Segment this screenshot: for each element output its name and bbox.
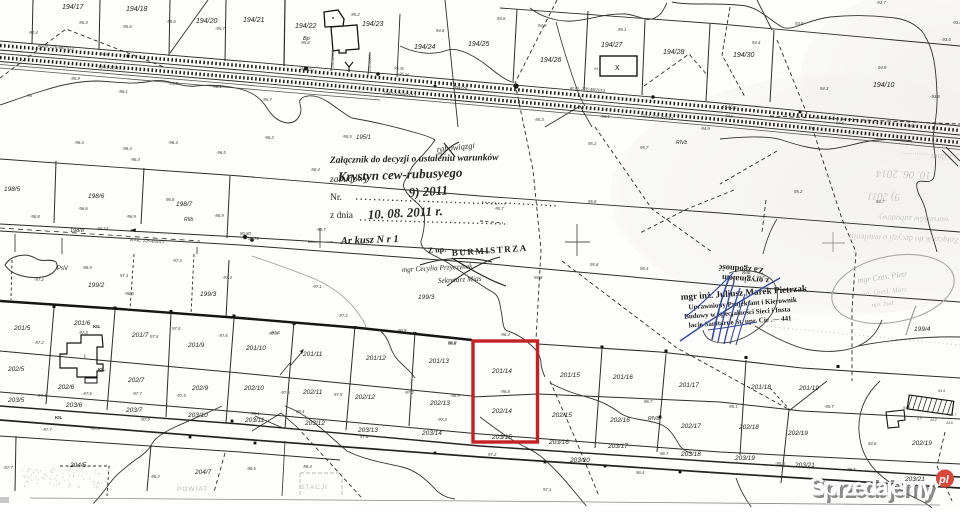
svg-text:203/13: 203/13 — [357, 427, 378, 434]
svg-text:96.8: 96.8 — [166, 197, 175, 202]
svg-text:-93.6: -93.6 — [941, 37, 951, 42]
svg-text:94.6: 94.6 — [836, 120, 845, 126]
svg-text:201/13: 201/13 — [428, 358, 449, 365]
svg-text:202/19: 202/19 — [911, 440, 932, 447]
svg-text:-97.6: -97.6 — [218, 333, 228, 338]
svg-text:202/10: 202/10 — [243, 385, 264, 392]
svg-text:95.7: 95.7 — [640, 145, 649, 150]
svg-text:203/19: 203/19 — [734, 455, 755, 462]
svg-text:202/14: 202/14 — [491, 408, 512, 415]
svg-text:-93.8: -93.8 — [952, 20, 960, 25]
svg-text:194/23: 194/23 — [362, 21, 384, 28]
svg-text:202/5: 202/5 — [7, 366, 25, 373]
svg-text:97.2: 97.2 — [488, 452, 497, 457]
svg-text:-97.3: -97.3 — [437, 417, 447, 422]
svg-text:96.7: 96.7 — [660, 451, 669, 456]
svg-text:95.6: 95.6 — [590, 262, 599, 267]
svg-text:201/10: 201/10 — [245, 345, 266, 352]
svg-text:97.4: 97.4 — [38, 393, 47, 398]
svg-text:94.7: 94.7 — [949, 413, 957, 417]
svg-text:201/9: 201/9 — [187, 342, 205, 349]
svg-text:Nr.: Nr. — [330, 193, 342, 203]
svg-text:95.8: 95.8 — [534, 275, 543, 280]
svg-text:-96.9: -96.9 — [82, 265, 92, 270]
svg-text:9) 2011: 9) 2011 — [408, 182, 448, 200]
svg-text:-95.9: -95.9 — [168, 81, 178, 86]
svg-text:-93.6: -93.6 — [930, 94, 940, 99]
svg-text:-97.5: -97.5 — [280, 390, 290, 395]
svg-text:202/12: 202/12 — [354, 394, 375, 401]
svg-text:203/5: 203/5 — [7, 397, 25, 404]
svg-text:pl: pl — [938, 474, 950, 486]
svg-text:201/6: 201/6 — [73, 320, 91, 327]
svg-text:-97.3: -97.3 — [172, 258, 182, 263]
svg-text:94.5: 94.5 — [903, 406, 911, 410]
svg-text:-95.6: -95.6 — [300, 40, 310, 45]
svg-text:-95.6: -95.6 — [122, 24, 132, 29]
svg-text:-97.6: -97.6 — [82, 391, 92, 396]
svg-text:-97.3: -97.3 — [78, 330, 88, 335]
svg-text:POWIAT: POWIAT — [177, 486, 208, 493]
svg-text:-96.8: -96.8 — [30, 214, 40, 219]
svg-text:95.2: 95.2 — [588, 141, 597, 146]
svg-text:-96.2: -96.2 — [264, 135, 274, 140]
svg-text:194/25: 194/25 — [468, 41, 490, 48]
svg-text:201/12: 201/12 — [365, 355, 386, 362]
svg-text:202/9: 202/9 — [191, 385, 209, 392]
svg-text:194/24: 194/24 — [414, 44, 436, 51]
svg-text:-97.7: -97.7 — [42, 427, 52, 432]
svg-text:190-4/2013: 190-4/2013 — [331, 50, 335, 68]
svg-text:-96.9: -96.9 — [450, 393, 460, 398]
svg-text:-96.9: -96.9 — [126, 214, 136, 219]
svg-text:44.8: 44.8 — [946, 421, 953, 425]
svg-text:203/11: 203/11 — [244, 417, 265, 424]
svg-text:-95.9: -95.9 — [70, 76, 80, 81]
svg-text:199/3: 199/3 — [418, 294, 435, 301]
svg-text:201/17: 201/17 — [678, 382, 699, 389]
svg-text:94.8: 94.8 — [436, 28, 445, 33]
svg-text:Z up.: Z up. — [428, 245, 447, 255]
svg-text:KIL: KIL — [55, 415, 63, 420]
svg-text:203/17: 203/17 — [607, 443, 628, 450]
svg-text:z dnia: z dnia — [330, 211, 354, 221]
svg-text:-97.2: -97.2 — [338, 313, 348, 318]
svg-text:201/16: 201/16 — [612, 374, 633, 381]
svg-text:194/20: 194/20 — [196, 18, 218, 25]
svg-text:-97.2: -97.2 — [34, 277, 44, 282]
svg-text:96.4: 96.4 — [636, 470, 645, 475]
svg-text:-96.4: -96.4 — [500, 332, 510, 337]
svg-text:194/21: 194/21 — [243, 17, 265, 24]
svg-text:94.6: 94.6 — [497, 16, 506, 21]
svg-text:-96.7: -96.7 — [316, 227, 326, 232]
svg-text:Sprzedajemy: Sprzedajemy — [809, 474, 935, 502]
svg-text:-95: -95 — [26, 93, 33, 98]
svg-text:95.4: 95.4 — [640, 266, 649, 271]
svg-text:-97.1: -97.1 — [312, 284, 322, 289]
svg-text:-95.5: -95.5 — [342, 134, 352, 139]
svg-text:198/8: 198/8 — [70, 228, 85, 234]
svg-text:97.1: 97.1 — [120, 273, 129, 278]
svg-text:-96.14: -96.14 — [96, 226, 109, 231]
svg-text:95.1: 95.1 — [618, 27, 627, 32]
svg-text:zabudowy: zabudowy — [329, 174, 369, 185]
svg-text:94.3: 94.3 — [820, 86, 829, 91]
svg-text:194/18: 194/18 — [126, 6, 148, 13]
svg-text:201/7: 201/7 — [131, 332, 149, 339]
svg-text:229-5/2013: 229-5/2013 — [368, 54, 372, 73]
svg-text:194/27: 194/27 — [601, 42, 624, 49]
svg-text:194/28: 194/28 — [663, 49, 685, 56]
svg-text:95.2: 95.2 — [794, 189, 803, 194]
svg-text:STACJI: STACJI — [300, 484, 328, 491]
svg-text:199/4: 199/4 — [914, 326, 931, 333]
svg-text:-95.6: -95.6 — [166, 19, 176, 24]
svg-text:-95.2: -95.2 — [350, 12, 360, 17]
svg-text:194/17: 194/17 — [62, 4, 85, 11]
svg-text:-96.8: -96.8 — [500, 389, 510, 394]
svg-text:204/7: 204/7 — [194, 469, 212, 476]
svg-text:-96.1: -96.1 — [118, 89, 128, 94]
svg-text:-95.7: -95.7 — [494, 206, 504, 211]
svg-text:KIL: KIL — [98, 367, 106, 372]
svg-text:198/5: 198/5 — [4, 186, 21, 193]
svg-text:94.9: 94.9 — [538, 23, 547, 28]
svg-text:202/13: 202/13 — [429, 400, 450, 407]
svg-text:-96.4: -96.4 — [130, 157, 140, 162]
svg-text:-96.4: -96.4 — [310, 167, 320, 172]
svg-text:-93.7: -93.7 — [876, 0, 886, 5]
svg-text:97.5: 97.5 — [172, 326, 181, 331]
svg-text:-98.1: -98.1 — [250, 411, 260, 416]
svg-text:-96.4: -96.4 — [168, 140, 178, 145]
svg-text:203/18: 203/18 — [680, 451, 701, 458]
svg-text:9) 2011: 9) 2011 — [867, 190, 901, 203]
svg-text:94-W: 94-W — [100, 51, 111, 57]
svg-text:203/6: 203/6 — [65, 402, 83, 409]
svg-text:-92.4: -92.4 — [28, 30, 38, 35]
svg-text:194/26: 194/26 — [540, 57, 562, 64]
svg-text:201/5: 201/5 — [13, 325, 31, 332]
svg-text:202/17: 202/17 — [680, 423, 701, 430]
svg-text:-97.3: -97.3 — [222, 275, 232, 280]
svg-text:97.5: 97.5 — [150, 334, 159, 339]
svg-text:-95.3: -95.3 — [78, 20, 88, 25]
svg-text:-97.8: -97.8 — [268, 331, 278, 336]
svg-text:-98.5: -98.5 — [246, 466, 256, 471]
svg-text:202/16: 202/16 — [609, 417, 630, 424]
svg-text:202/6: 202/6 — [57, 384, 75, 391]
svg-text:202/18: 202/18 — [738, 424, 759, 431]
svg-text:96.7: 96.7 — [644, 399, 653, 404]
svg-text:-96.5: -96.5 — [216, 150, 226, 155]
svg-text:202/15: 202/15 — [551, 412, 572, 419]
svg-text:94.4: 94.4 — [752, 40, 761, 45]
svg-text:202/19: 202/19 — [787, 430, 808, 437]
svg-text:-94.9: -94.9 — [700, 126, 710, 131]
svg-text:201/18: 201/18 — [750, 384, 771, 391]
svg-text:-97.2: -97.2 — [34, 340, 44, 345]
svg-text:201/14: 201/14 — [491, 368, 512, 375]
svg-text:198/7: 198/7 — [176, 201, 193, 208]
svg-text:10. 06. 2014: 10. 06. 2014 — [875, 167, 931, 181]
svg-text:-98.4: -98.4 — [302, 464, 312, 469]
svg-text:203/10: 203/10 — [187, 412, 208, 419]
svg-text:-95.3: -95.3 — [534, 117, 544, 122]
svg-text:201/11: 201/11 — [302, 351, 323, 358]
svg-text:-96.1: -96.1 — [212, 84, 222, 89]
svg-text:195/1: 195/1 — [356, 135, 371, 141]
svg-text:95.6: 95.6 — [588, 199, 597, 204]
svg-text:94.9: 94.9 — [878, 65, 887, 70]
svg-text:-96.8: -96.8 — [124, 291, 134, 296]
svg-text:198/6: 198/6 — [88, 193, 105, 200]
svg-text:RIVb: RIVb — [676, 140, 687, 146]
svg-text:97.1: 97.1 — [543, 487, 552, 492]
svg-text:94.6: 94.6 — [938, 389, 946, 393]
svg-text:202/11: 202/11 — [302, 389, 323, 396]
svg-text:-95.7: -95.7 — [262, 97, 272, 102]
svg-text:96.79: 96.79 — [248, 236, 259, 241]
svg-text:-97.5: -97.5 — [176, 393, 186, 398]
svg-text:204/5: 204/5 — [69, 462, 87, 469]
svg-text:203/7: 203/7 — [125, 407, 143, 414]
svg-text:199/3: 199/3 — [200, 291, 217, 298]
svg-text:-97.7: -97.7 — [132, 391, 142, 396]
svg-text:202/7: 202/7 — [127, 377, 145, 384]
svg-text:94.8: 94.8 — [868, 441, 877, 446]
svg-text:-96.6: -96.6 — [78, 206, 88, 211]
svg-text:-95.1: -95.1 — [728, 404, 738, 409]
svg-text:44.2: 44.2 — [930, 418, 937, 422]
svg-text:201/15: 201/15 — [559, 372, 580, 379]
svg-text:-96.4: -96.4 — [74, 140, 84, 145]
svg-text:194/10: 194/10 — [873, 82, 895, 89]
svg-text:-95.7: -95.7 — [215, 26, 225, 31]
svg-text:RIIb: RIIb — [184, 217, 193, 223]
svg-text:-96.4: -96.4 — [122, 146, 132, 151]
svg-text:94: 94 — [594, 67, 598, 71]
svg-text:96.8: 96.8 — [448, 341, 457, 346]
svg-text:203/16: 203/16 — [548, 439, 569, 446]
svg-text:PsV: PsV — [57, 266, 68, 272]
svg-text:199/2: 199/2 — [88, 282, 105, 289]
svg-text:-94.6: -94.6 — [906, 123, 916, 129]
svg-text:I.: I. — [84, 354, 87, 360]
svg-text:-94.5: -94.5 — [724, 113, 734, 119]
svg-text:201/19: 201/19 — [798, 385, 819, 392]
svg-text:X: X — [615, 65, 620, 72]
svg-text:194/22: 194/22 — [295, 23, 317, 30]
svg-text:-98.2: -98.2 — [150, 474, 160, 479]
svg-text:-97.2: -97.2 — [404, 390, 414, 395]
svg-text:-95.1: -95.1 — [600, 114, 610, 119]
svg-text:203/14: 203/14 — [421, 430, 442, 437]
svg-text:KIL: KIL — [93, 324, 101, 329]
svg-text:Ar kusz N r 1: Ar kusz N r 1 — [340, 234, 399, 247]
svg-text:-97.7: -97.7 — [3, 465, 13, 470]
svg-text:-95.7: -95.7 — [824, 404, 834, 409]
svg-text:97.5: 97.5 — [334, 392, 343, 397]
svg-text:-96.9: -96.9 — [214, 213, 224, 218]
svg-text:194/30: 194/30 — [733, 52, 755, 59]
